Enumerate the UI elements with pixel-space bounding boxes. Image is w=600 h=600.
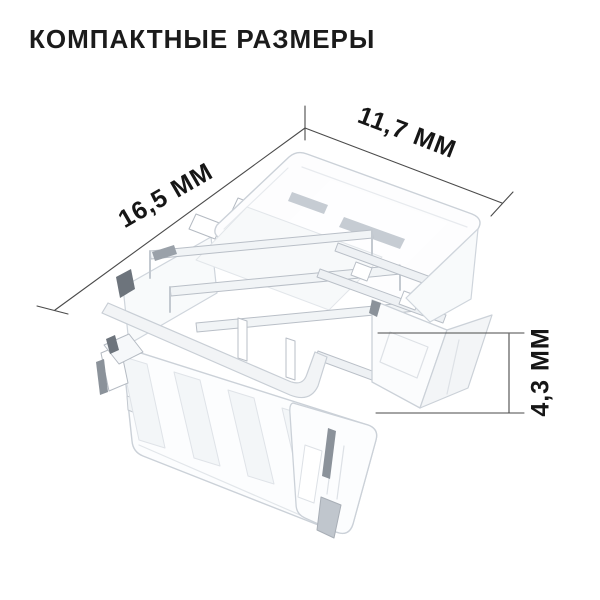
depth-end-tick xyxy=(491,192,513,216)
connector-product-image xyxy=(0,0,600,600)
support-post xyxy=(238,318,247,361)
dimension-label-height: 4,3 ММ xyxy=(527,327,556,416)
width-end-tick xyxy=(37,306,68,314)
support-post xyxy=(286,338,295,380)
product-scene: 16,5 ММ 11,7 ММ 4,3 ММ xyxy=(0,0,600,600)
product-infographic: КОМПАКТНЫЕ РАЗМЕРЫ xyxy=(0,0,600,600)
